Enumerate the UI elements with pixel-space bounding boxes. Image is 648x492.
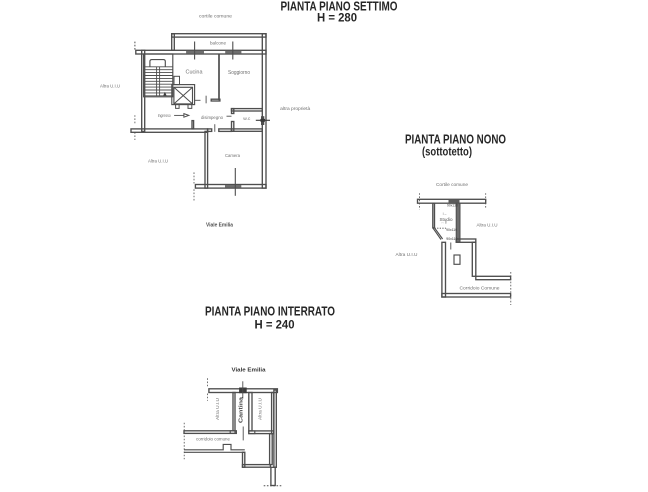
svg-text:Cantina: Cantina [239,396,245,423]
svg-text:H = 240: H = 240 [255,317,295,331]
svg-text:Altra U.I.U: Altra U.I.U [396,252,418,257]
svg-text:Altra U.I.U: Altra U.I.U [100,84,120,89]
svg-text:altra proprietà: altra proprietà [280,106,310,111]
svg-text:Altra U.I.U: Altra U.I.U [148,158,168,163]
svg-text:90x110: 90x110 [446,237,457,241]
svg-text:Cucina: Cucina [186,69,203,75]
svg-text:I –: I – [443,212,447,216]
svg-text:H = 280: H = 280 [317,11,357,25]
svg-text:90x130: 90x130 [447,204,458,208]
svg-text:Camera: Camera [225,153,240,159]
svg-text:disimpegno: disimpegno [201,115,223,120]
svg-text:Cortile comune: Cortile comune [436,182,468,187]
svg-text:(sottotetto): (sottotetto) [422,145,472,159]
svg-text:PIANTA PIANO INTERRATO: PIANTA PIANO INTERRATO [205,303,335,318]
svg-text:90x110: 90x110 [446,228,457,232]
svg-text:Viale Emilia: Viale Emilia [206,222,234,228]
svg-text:↔ 8: ↔ 8 [441,221,447,225]
svg-text:balcone: balcone [210,41,226,46]
svg-text:w.c: w.c [243,116,251,121]
svg-text:Altra U.I.U: Altra U.I.U [258,398,263,420]
svg-text:Soggiorno: Soggiorno [228,70,250,76]
svg-text:Altra U.I.U: Altra U.I.U [215,398,220,420]
svg-text:Viale Emilia: Viale Emilia [232,368,267,374]
svg-text:Ingresso: Ingresso [158,113,171,118]
svg-text:cortile comune: cortile comune [199,14,232,19]
svg-text:Altra U.I.U: Altra U.I.U [477,223,498,228]
svg-text:Corridoio Comune: Corridoio Comune [460,286,500,291]
svg-text:corridoio comune: corridoio comune [196,437,230,442]
